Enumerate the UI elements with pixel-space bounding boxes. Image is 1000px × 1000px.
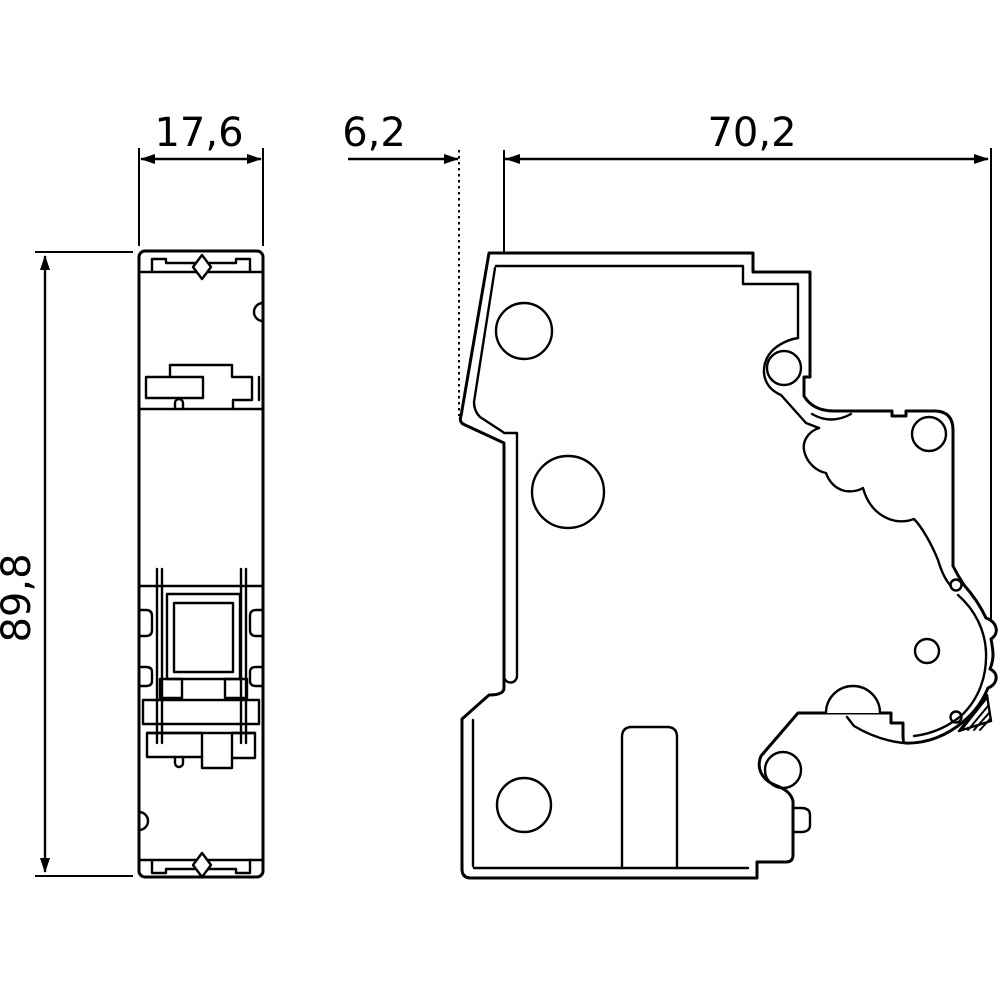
- dimension-arrowhead-down: [40, 858, 50, 873]
- dimension-front-width: 17,6: [139, 110, 263, 246]
- dimension-arrowhead-right-rear: [974, 154, 989, 164]
- dimension-arrowhead-right-nose: [444, 154, 459, 164]
- dimension-height: 89,8: [0, 252, 133, 876]
- dimension-arrowhead-left-face: [505, 154, 520, 164]
- front-view: [139, 251, 263, 877]
- dimension-value-nose-depth: 6,2: [342, 110, 406, 156]
- dimension-value-body-depth: 70,2: [707, 110, 796, 156]
- side-rivet-lower: [765, 752, 801, 788]
- dimension-value-front-width: 17,6: [154, 110, 243, 156]
- dimension-arrowhead-right: [247, 154, 262, 164]
- dimension-arrowhead-left: [140, 154, 155, 164]
- technical-drawing-page: 89,8 17,6 6,2 70,2: [0, 0, 1000, 1000]
- side-view: [460, 253, 996, 878]
- dimension-value-height: 89,8: [0, 553, 40, 642]
- dimension-arrowhead-up: [40, 255, 50, 270]
- front-body-outline: [139, 251, 263, 877]
- side-rear-tab: [793, 808, 810, 832]
- circuit-breaker-dimension-drawing: 89,8 17,6 6,2 70,2: [0, 0, 1000, 1000]
